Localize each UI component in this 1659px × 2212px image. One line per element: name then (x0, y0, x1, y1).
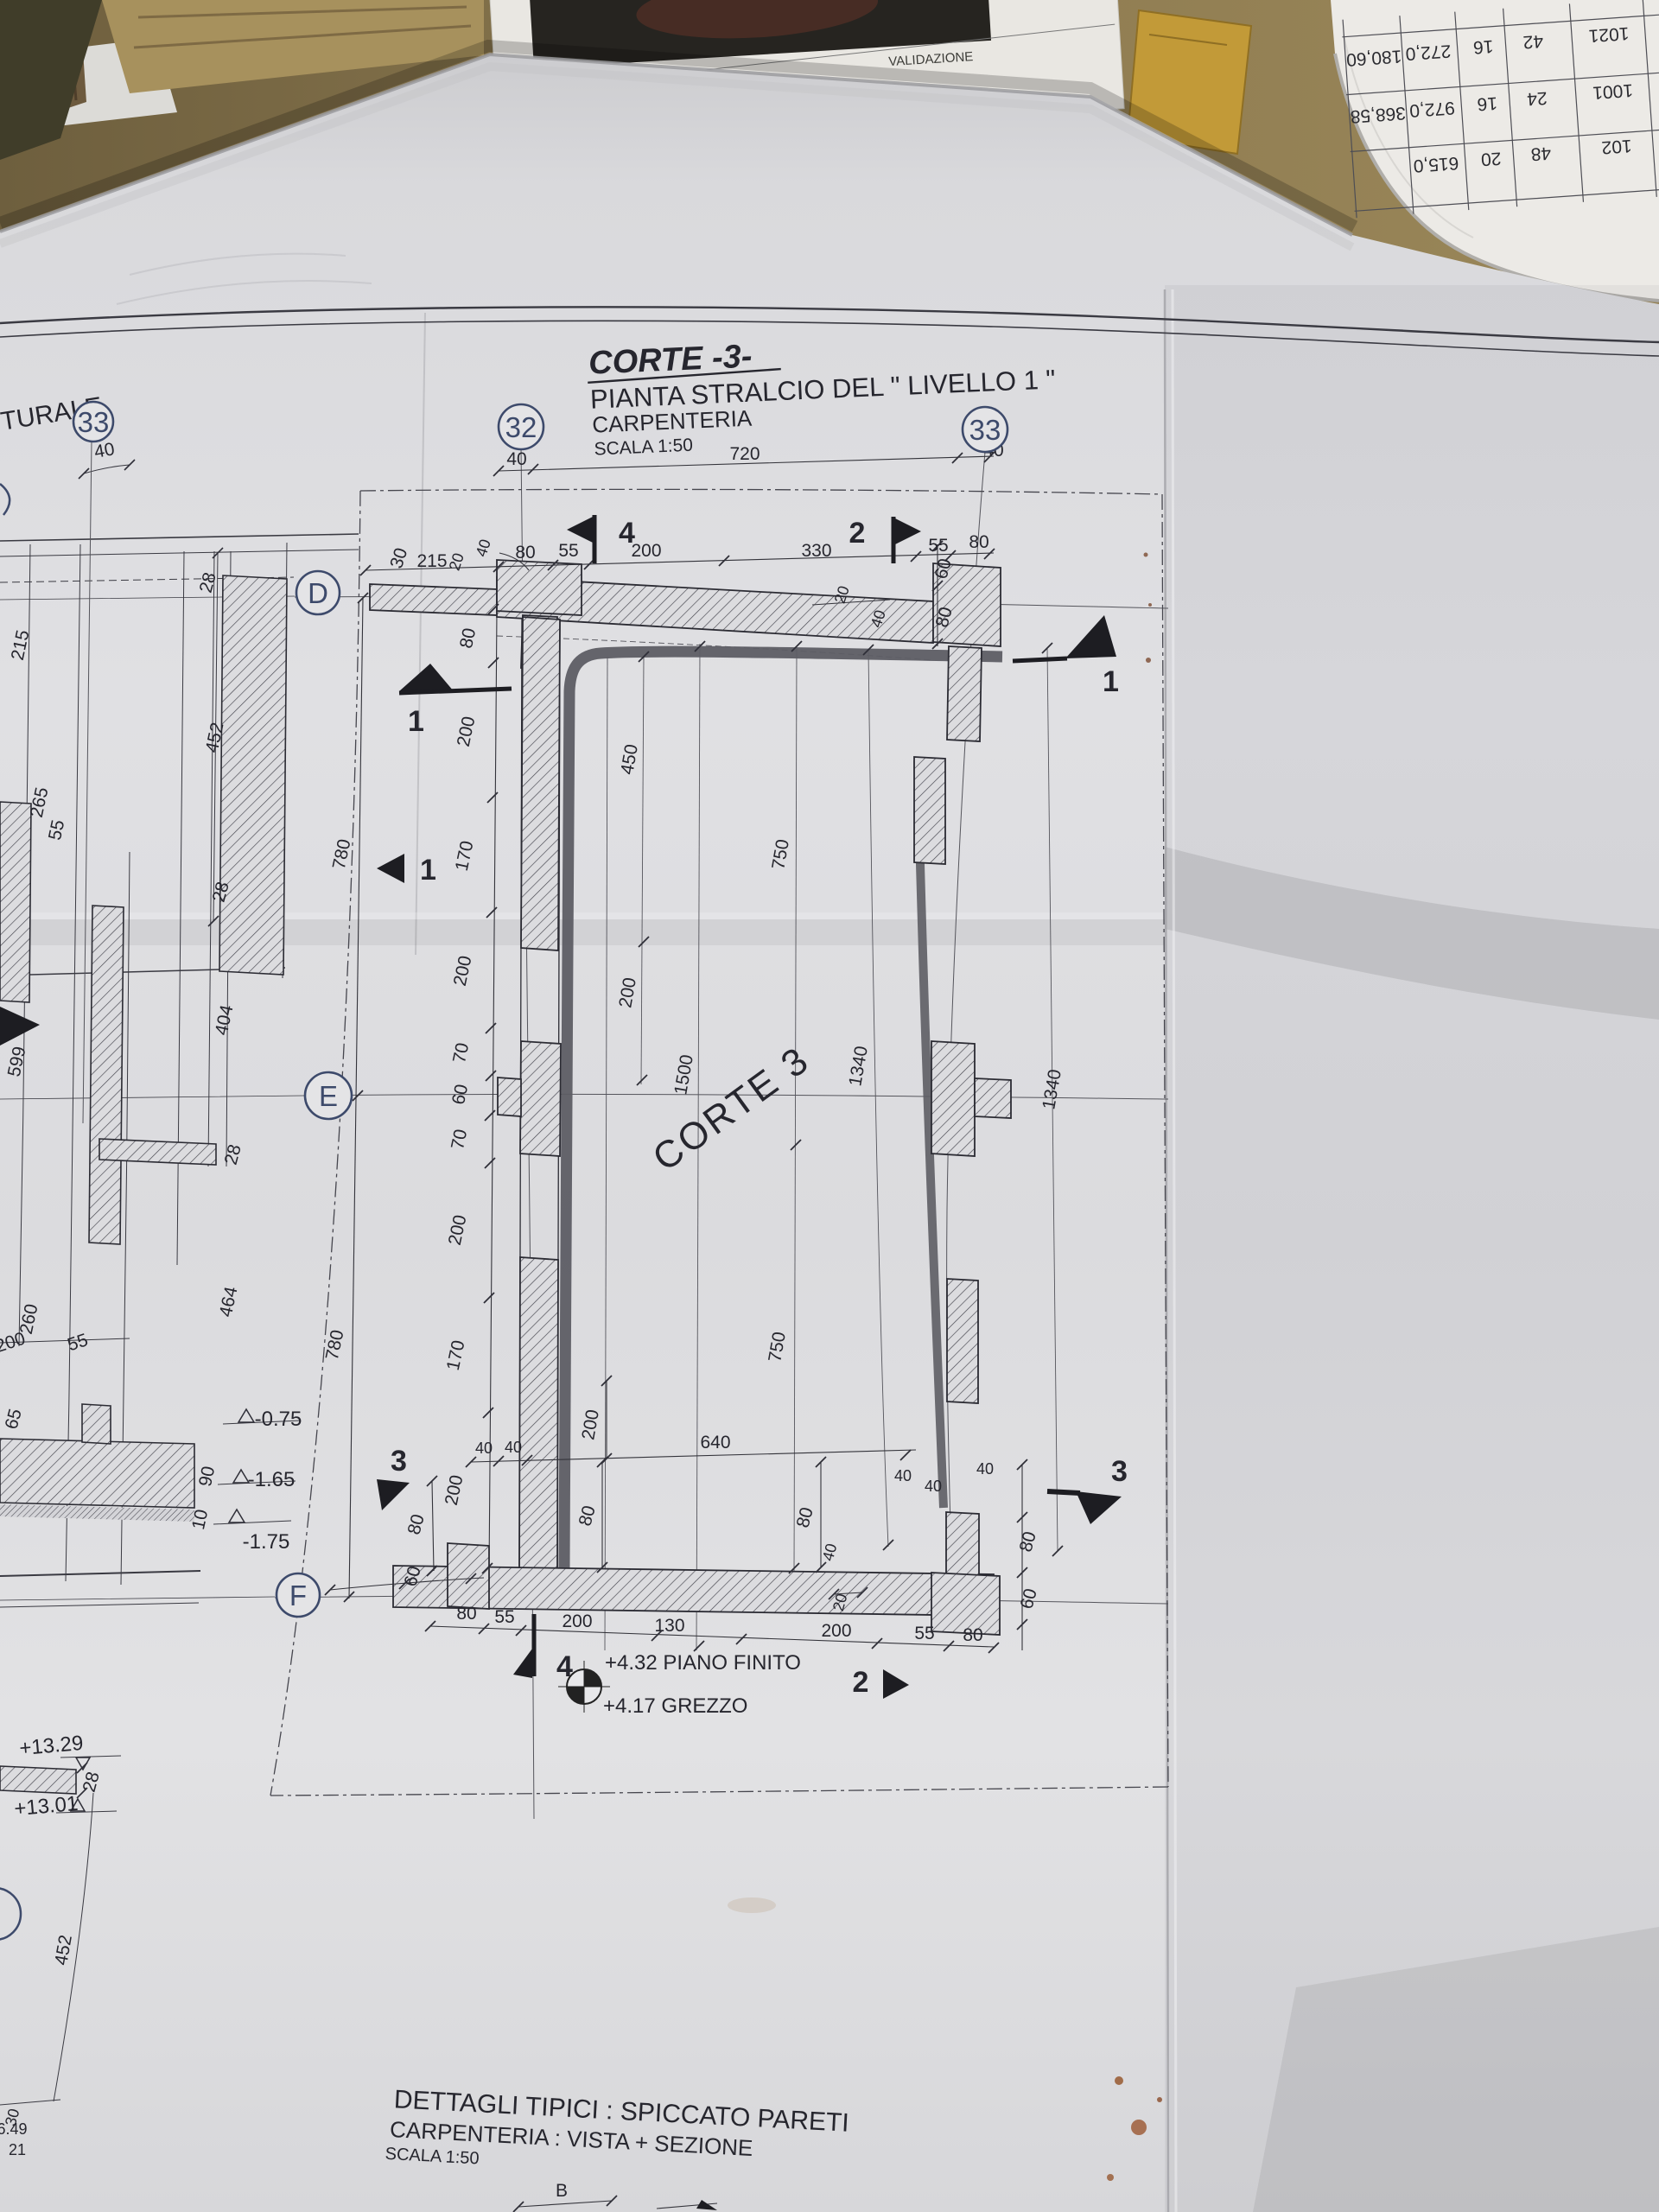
level-label: -0.75 (255, 1408, 302, 1431)
dim-label: 200 (562, 1611, 592, 1631)
dim-label: 40 (925, 1478, 942, 1495)
dim-label: 720 (729, 444, 760, 464)
level-label: 6.49 (0, 2120, 28, 2138)
level-label: +4.17 GREZZO (603, 1694, 747, 1718)
wall-left-lower (519, 1257, 558, 1571)
dim-label: 80 (963, 1625, 982, 1645)
pier-right-1 (914, 757, 945, 864)
section-flag-label: 2 (853, 1666, 869, 1699)
table-cell: 1021 (1588, 23, 1630, 46)
table-cell: 180,60 (1345, 46, 1402, 69)
table-cell: 24 (1526, 87, 1548, 109)
dim-label: 55 (494, 1607, 514, 1627)
dim-label: 200 (631, 541, 661, 561)
level-label: +4.32 PIANO FINITO (605, 1651, 801, 1675)
dim-label: 70 (448, 1128, 471, 1152)
dim-label: 40 (92, 439, 116, 462)
table-cell: 972,0 (1409, 98, 1456, 121)
pier-right-3 (947, 1279, 978, 1403)
dim-label: 55 (558, 541, 578, 561)
dim-label: 80 (515, 543, 535, 563)
dim-label: 200 (821, 1621, 851, 1641)
pier-right-E-flange (975, 1078, 1011, 1118)
table-cell: 272,0 (1405, 41, 1452, 64)
section-flag-label: 3 (1111, 1455, 1128, 1488)
dim-label: 40 (976, 1460, 994, 1478)
dim-label: 40 (505, 1439, 522, 1456)
table-cell: 102 (1601, 136, 1633, 157)
grid-bubble-label: F (289, 1580, 307, 1611)
dim-label: 80 (456, 626, 480, 651)
pier-bottom-left (448, 1543, 489, 1609)
section-flag-label: 3 (391, 1445, 407, 1478)
section-flag-label: 1 (420, 854, 436, 887)
photo-of-structural-drawing: REGIONE CALABRIA VALIDAZIONE 102 48 20 6… (0, 0, 1659, 2212)
level-label: -1.75 (243, 1530, 290, 1554)
grid-bubble-label: 33 (78, 406, 110, 438)
grid-bubble-label: D (308, 577, 328, 609)
pier-topright-stem (947, 646, 982, 741)
pier-bottomright-stem (946, 1512, 979, 1576)
grid-bubble-label: 33 (969, 414, 1001, 446)
dim-label: 640 (700, 1433, 730, 1452)
dim-label: 80 (969, 532, 988, 552)
dim-label: 40 (506, 449, 526, 469)
grid-bubble-label: E (319, 1080, 338, 1112)
wall-left-upper (521, 617, 560, 950)
dim-label: 55 (914, 1624, 934, 1643)
wall-top-left (370, 584, 497, 615)
level-label: 21 (9, 2141, 26, 2158)
dim-label: 90 (195, 1465, 219, 1489)
section-flag-label: 1 (1103, 665, 1119, 698)
pier-left-E (520, 1041, 561, 1156)
dim-label: 40 (475, 1440, 493, 1457)
table-cell: 16 (1477, 92, 1498, 114)
table-cell: 1001 (1592, 80, 1634, 103)
dim-label: 60 (448, 1083, 472, 1107)
table-cell: 20 (1480, 148, 1502, 169)
rust-stain (1115, 2076, 1123, 2085)
dim-label: 70 (449, 1041, 473, 1065)
dim-label: 55 (928, 536, 948, 556)
dim-label: 80 (456, 1604, 476, 1624)
dim-label: 55 (45, 818, 68, 842)
dim-label-b: B (556, 2181, 568, 2201)
plan-title: CORTE -3- (588, 339, 753, 382)
table-cell: 368,58 (1350, 103, 1407, 126)
dim-label: 10 (188, 1508, 212, 1532)
section-flag-label: 4 (619, 517, 635, 550)
table-cell: 615,0 (1413, 153, 1459, 176)
dim-label: 130 (654, 1616, 684, 1636)
level-label: -1.65 (248, 1468, 296, 1491)
table-cell: 42 (1522, 31, 1544, 53)
dim-label: 215 (416, 551, 447, 571)
dim-label: 330 (801, 541, 831, 561)
grid-bubble-label: 32 (505, 411, 537, 443)
table-cell: 48 (1530, 143, 1552, 164)
pier-right-E (931, 1041, 975, 1156)
section-flag-label: 1 (408, 705, 424, 738)
section-flag-label: 2 (849, 517, 866, 550)
table-cell: 16 (1472, 36, 1494, 58)
pier-top-flange (497, 560, 582, 615)
pier-left-E-bump (498, 1077, 521, 1116)
blueprint-photo: REGIONE CALABRIA VALIDAZIONE 102 48 20 6… (0, 0, 1659, 2212)
dim-label: 40 (894, 1467, 912, 1484)
rust-stain (1131, 2120, 1147, 2135)
